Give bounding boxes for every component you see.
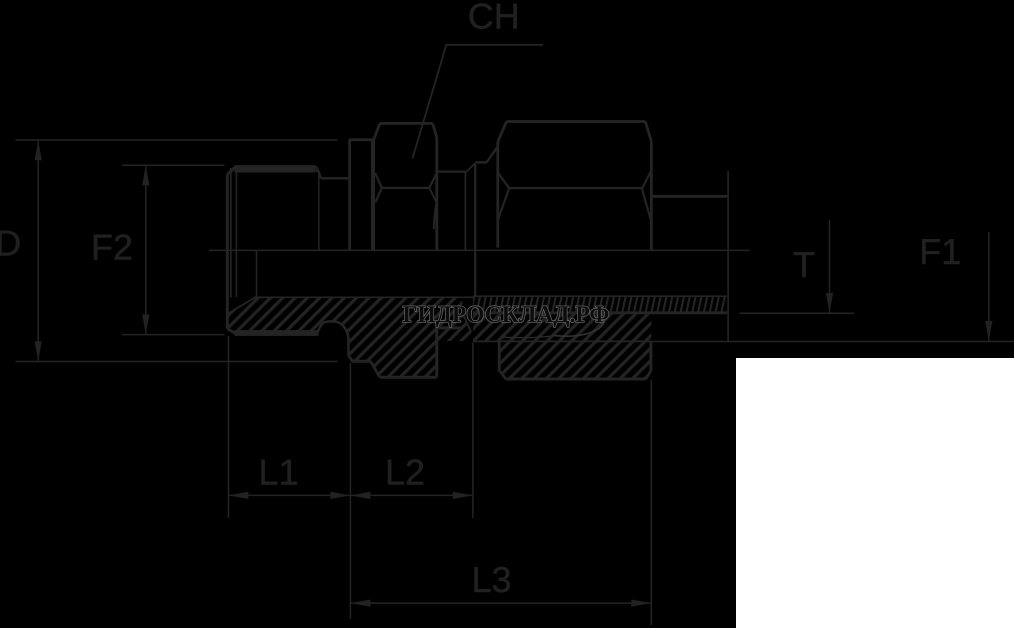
- svg-text:CH: CH: [468, 0, 520, 37]
- svg-text:D: D: [0, 223, 21, 264]
- svg-text:F1: F1: [919, 231, 961, 272]
- svg-text:L3: L3: [471, 559, 511, 600]
- svg-text:F2: F2: [91, 226, 133, 267]
- svg-text:L2: L2: [385, 452, 425, 493]
- svg-text:ГИДРОСКЛАД.РФ: ГИДРОСКЛАД.РФ: [403, 302, 610, 328]
- svg-text:T: T: [793, 244, 815, 285]
- svg-text:L1: L1: [258, 452, 298, 493]
